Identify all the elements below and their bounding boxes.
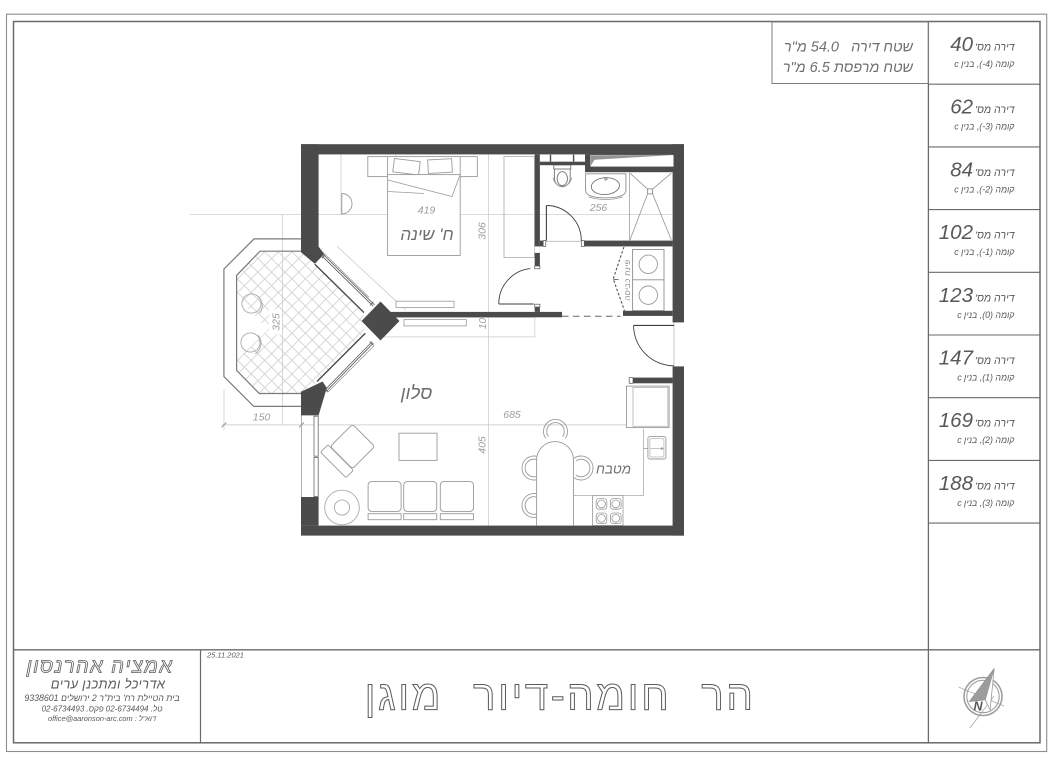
svg-text:150: 150 xyxy=(253,412,271,424)
svg-text:102: 102 xyxy=(939,221,974,244)
svg-text:דירה מס': דירה מס' xyxy=(975,230,1016,242)
svg-text:405: 405 xyxy=(477,436,489,454)
svg-text:40: 40 xyxy=(950,33,973,56)
svg-text:סלון: סלון xyxy=(400,382,433,403)
svg-text:188: 188 xyxy=(939,472,974,495)
svg-text:419: 419 xyxy=(418,205,436,217)
svg-text:קומה ‎(3)‎, בנין c: קומה ‎(3)‎, בנין c xyxy=(957,498,1015,508)
svg-text:טל. 02-6734494 פקס. 02-6734493: טל. 02-6734494 פקס. 02-6734493 xyxy=(42,705,164,714)
svg-text:84: 84 xyxy=(950,158,973,181)
svg-text:אדריכל ומתכנן ערים: אדריכל ומתכנן ערים xyxy=(51,677,166,692)
svg-text:דירה מס': דירה מס' xyxy=(975,167,1016,179)
svg-text:אמציה אהרנסון: אמציה אהרנסון xyxy=(26,656,174,678)
svg-text:306: 306 xyxy=(477,222,489,240)
svg-text:קומה ‎(-1)‎, בנין c: קומה ‎(-1)‎, בנין c xyxy=(954,247,1015,257)
svg-text:147: 147 xyxy=(939,347,975,370)
svg-text:פינת כביסה: פינת כביסה xyxy=(623,260,632,301)
svg-text:ח' שינה: ח' שינה xyxy=(400,225,453,244)
svg-text:דירה מס': דירה מס' xyxy=(975,480,1016,492)
svg-text:256: 256 xyxy=(589,202,608,214)
svg-text:דוא"ל : office@aaronson-arc.co: דוא"ל : office@aaronson-arc.com xyxy=(48,714,157,723)
svg-text:הר חומה-דיור מוגן: הר חומה-דיור מוגן xyxy=(365,672,756,719)
svg-text:שטח דירה 54.0 מ"ר: שטח דירה 54.0 מ"ר xyxy=(784,40,914,56)
svg-text:10: 10 xyxy=(478,318,489,330)
svg-text:דירה מס': דירה מס' xyxy=(975,42,1016,54)
svg-text:25.11.2021: 25.11.2021 xyxy=(206,651,244,660)
svg-text:דירה מס': דירה מס' xyxy=(975,104,1016,116)
svg-text:169: 169 xyxy=(939,409,973,432)
svg-text:דירה מס': דירה מס' xyxy=(975,355,1016,367)
svg-text:N: N xyxy=(974,700,984,714)
svg-text:בית הטיילת רח' בית"ר 2 ירושלים: בית הטיילת רח' בית"ר 2 ירושלים 9338601 xyxy=(24,693,179,703)
svg-text:שטח מרפסת 6.5 מ"ר: שטח מרפסת 6.5 מ"ר xyxy=(783,60,914,76)
svg-text:דירה מס': דירה מס' xyxy=(975,418,1016,430)
svg-text:מטבח: מטבח xyxy=(596,462,631,477)
svg-text:685: 685 xyxy=(503,409,521,421)
svg-text:קומה ‎(-3)‎, בנין c: קומה ‎(-3)‎, בנין c xyxy=(954,122,1015,132)
svg-text:קומה ‎(-2)‎, בנין c: קומה ‎(-2)‎, בנין c xyxy=(954,184,1015,194)
svg-text:קומה ‎(0)‎, בנין c: קומה ‎(0)‎, בנין c xyxy=(957,310,1015,320)
svg-text:325: 325 xyxy=(271,313,283,331)
svg-text:קומה ‎(1)‎, בנין c: קומה ‎(1)‎, בנין c xyxy=(957,373,1015,383)
svg-text:123: 123 xyxy=(939,284,974,307)
svg-text:דירה מס': דירה מס' xyxy=(975,292,1016,304)
svg-text:קומה ‎(2)‎, בנין c: קומה ‎(2)‎, בנין c xyxy=(957,435,1015,445)
svg-text:קומה ‎(-4)‎, בנין c: קומה ‎(-4)‎, בנין c xyxy=(954,59,1015,69)
svg-text:62: 62 xyxy=(950,96,973,119)
